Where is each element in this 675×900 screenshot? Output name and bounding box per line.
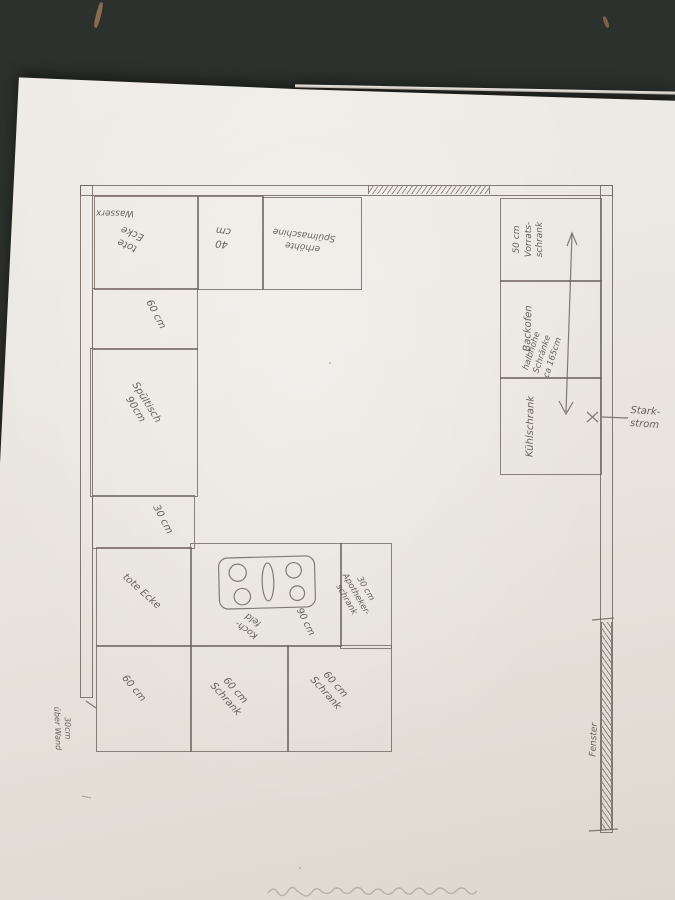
label-vorratsschrank: 50 cm Vorrats- schrank bbox=[512, 222, 547, 258]
cabinet-60cm-left bbox=[92, 288, 198, 350]
wall-top bbox=[80, 185, 613, 196]
cabinet-30cm-left bbox=[92, 495, 195, 549]
door-opening-hatch bbox=[368, 186, 490, 194]
label-kuehlschrank: Kühlschrank bbox=[524, 396, 538, 457]
cabinet-kuehlschrank bbox=[500, 377, 602, 475]
label-starkstrom: Stark- strom bbox=[629, 404, 661, 432]
label-fenster: Fenster bbox=[588, 723, 601, 757]
window-hatch bbox=[601, 622, 612, 830]
label-ueber-wand: 30cm über Wand bbox=[51, 706, 73, 750]
label-wasser: Wasserx bbox=[96, 206, 134, 218]
cabinet-kochfeld bbox=[190, 543, 342, 647]
cabinet-40cm bbox=[197, 196, 264, 290]
photo-of-kitchen-floorplan: { "scene": { "description": "Photo of a … bbox=[0, 0, 675, 900]
